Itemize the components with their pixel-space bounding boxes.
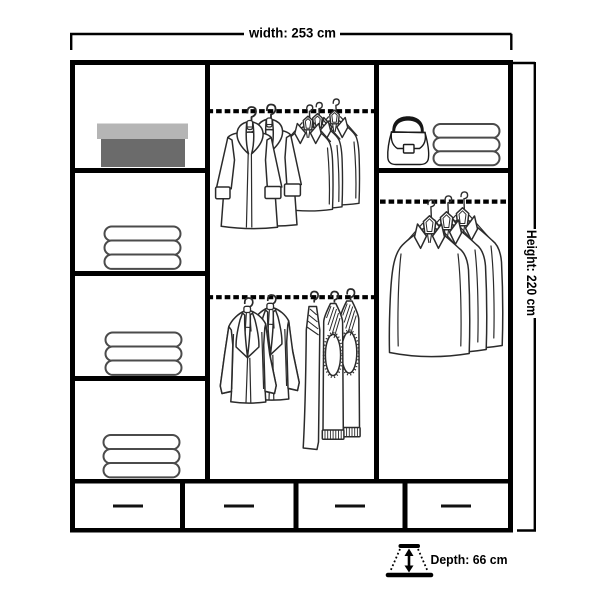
svg-text:width: 253 cm: width: 253 cm (248, 26, 336, 41)
svg-text:Height: 220 cm: Height: 220 cm (524, 230, 539, 316)
svg-text:Depth: 66 cm: Depth: 66 cm (431, 552, 508, 567)
